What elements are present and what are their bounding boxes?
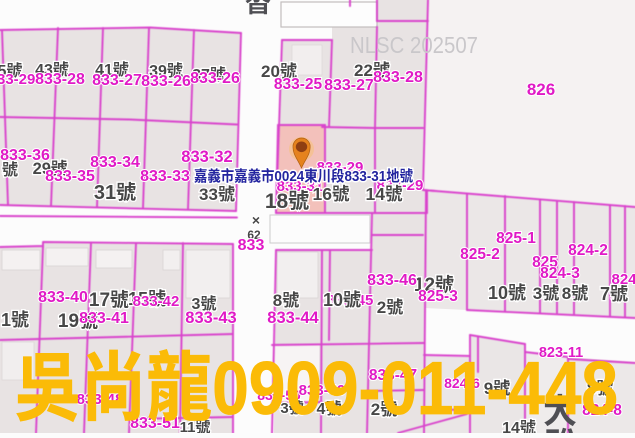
svg-text:8號: 8號 <box>562 284 588 303</box>
svg-text:10號: 10號 <box>323 290 361 310</box>
svg-text:1號: 1號 <box>1 310 29 330</box>
svg-text:824-3: 824-3 <box>540 265 580 282</box>
svg-text:吳尚龍0909-011-448: 吳尚龍0909-011-448 <box>15 346 618 430</box>
svg-text:825-1: 825-1 <box>496 230 536 247</box>
svg-text:8號: 8號 <box>273 291 299 310</box>
svg-text:833-40: 833-40 <box>38 289 88 306</box>
svg-text:833-28: 833-28 <box>373 69 423 86</box>
svg-text:2號: 2號 <box>377 298 403 317</box>
svg-text:833-43: 833-43 <box>185 309 236 327</box>
svg-text:833-32: 833-32 <box>181 148 232 166</box>
svg-text:833-36: 833-36 <box>0 147 50 164</box>
svg-text:833-44: 833-44 <box>267 309 319 327</box>
svg-text:嘉義市嘉義市0024東川段833-31地號: 嘉義市嘉義市0024東川段833-31地號 <box>194 167 413 185</box>
svg-text:833-25: 833-25 <box>274 76 323 93</box>
svg-text:833-27: 833-27 <box>324 77 374 94</box>
svg-text:833-33: 833-33 <box>140 168 190 185</box>
svg-text:16號: 16號 <box>313 184 350 204</box>
svg-text:833-29: 833-29 <box>0 71 35 88</box>
svg-text:18號: 18號 <box>265 190 309 213</box>
svg-text:14號: 14號 <box>366 184 403 204</box>
svg-text:833-27: 833-27 <box>92 72 142 89</box>
svg-text:833-35: 833-35 <box>45 168 95 185</box>
svg-text:833-26: 833-26 <box>190 70 240 87</box>
svg-text:833-26: 833-26 <box>141 73 191 90</box>
svg-text:×: × <box>252 212 260 228</box>
svg-text:833-42: 833-42 <box>133 293 180 310</box>
svg-text:17號: 17號 <box>89 289 129 311</box>
svg-text:833-46: 833-46 <box>367 272 417 289</box>
svg-text:833: 833 <box>238 237 265 254</box>
svg-text:833-41: 833-41 <box>79 310 129 327</box>
svg-text:824: 824 <box>611 271 635 288</box>
svg-text:833-34: 833-34 <box>90 154 140 171</box>
svg-text:833-28: 833-28 <box>35 71 85 88</box>
svg-text:沓: 沓 <box>245 0 271 18</box>
svg-text:3號: 3號 <box>533 284 559 303</box>
svg-text:NLSC 202507: NLSC 202507 <box>350 32 478 58</box>
svg-text:31號: 31號 <box>94 181 136 204</box>
svg-text:825-2: 825-2 <box>460 246 500 263</box>
svg-text:826: 826 <box>527 80 555 99</box>
svg-text:33號: 33號 <box>199 185 235 204</box>
svg-text:824-2: 824-2 <box>568 242 608 259</box>
svg-text:825-3: 825-3 <box>418 288 458 305</box>
svg-text:10號: 10號 <box>488 283 526 303</box>
